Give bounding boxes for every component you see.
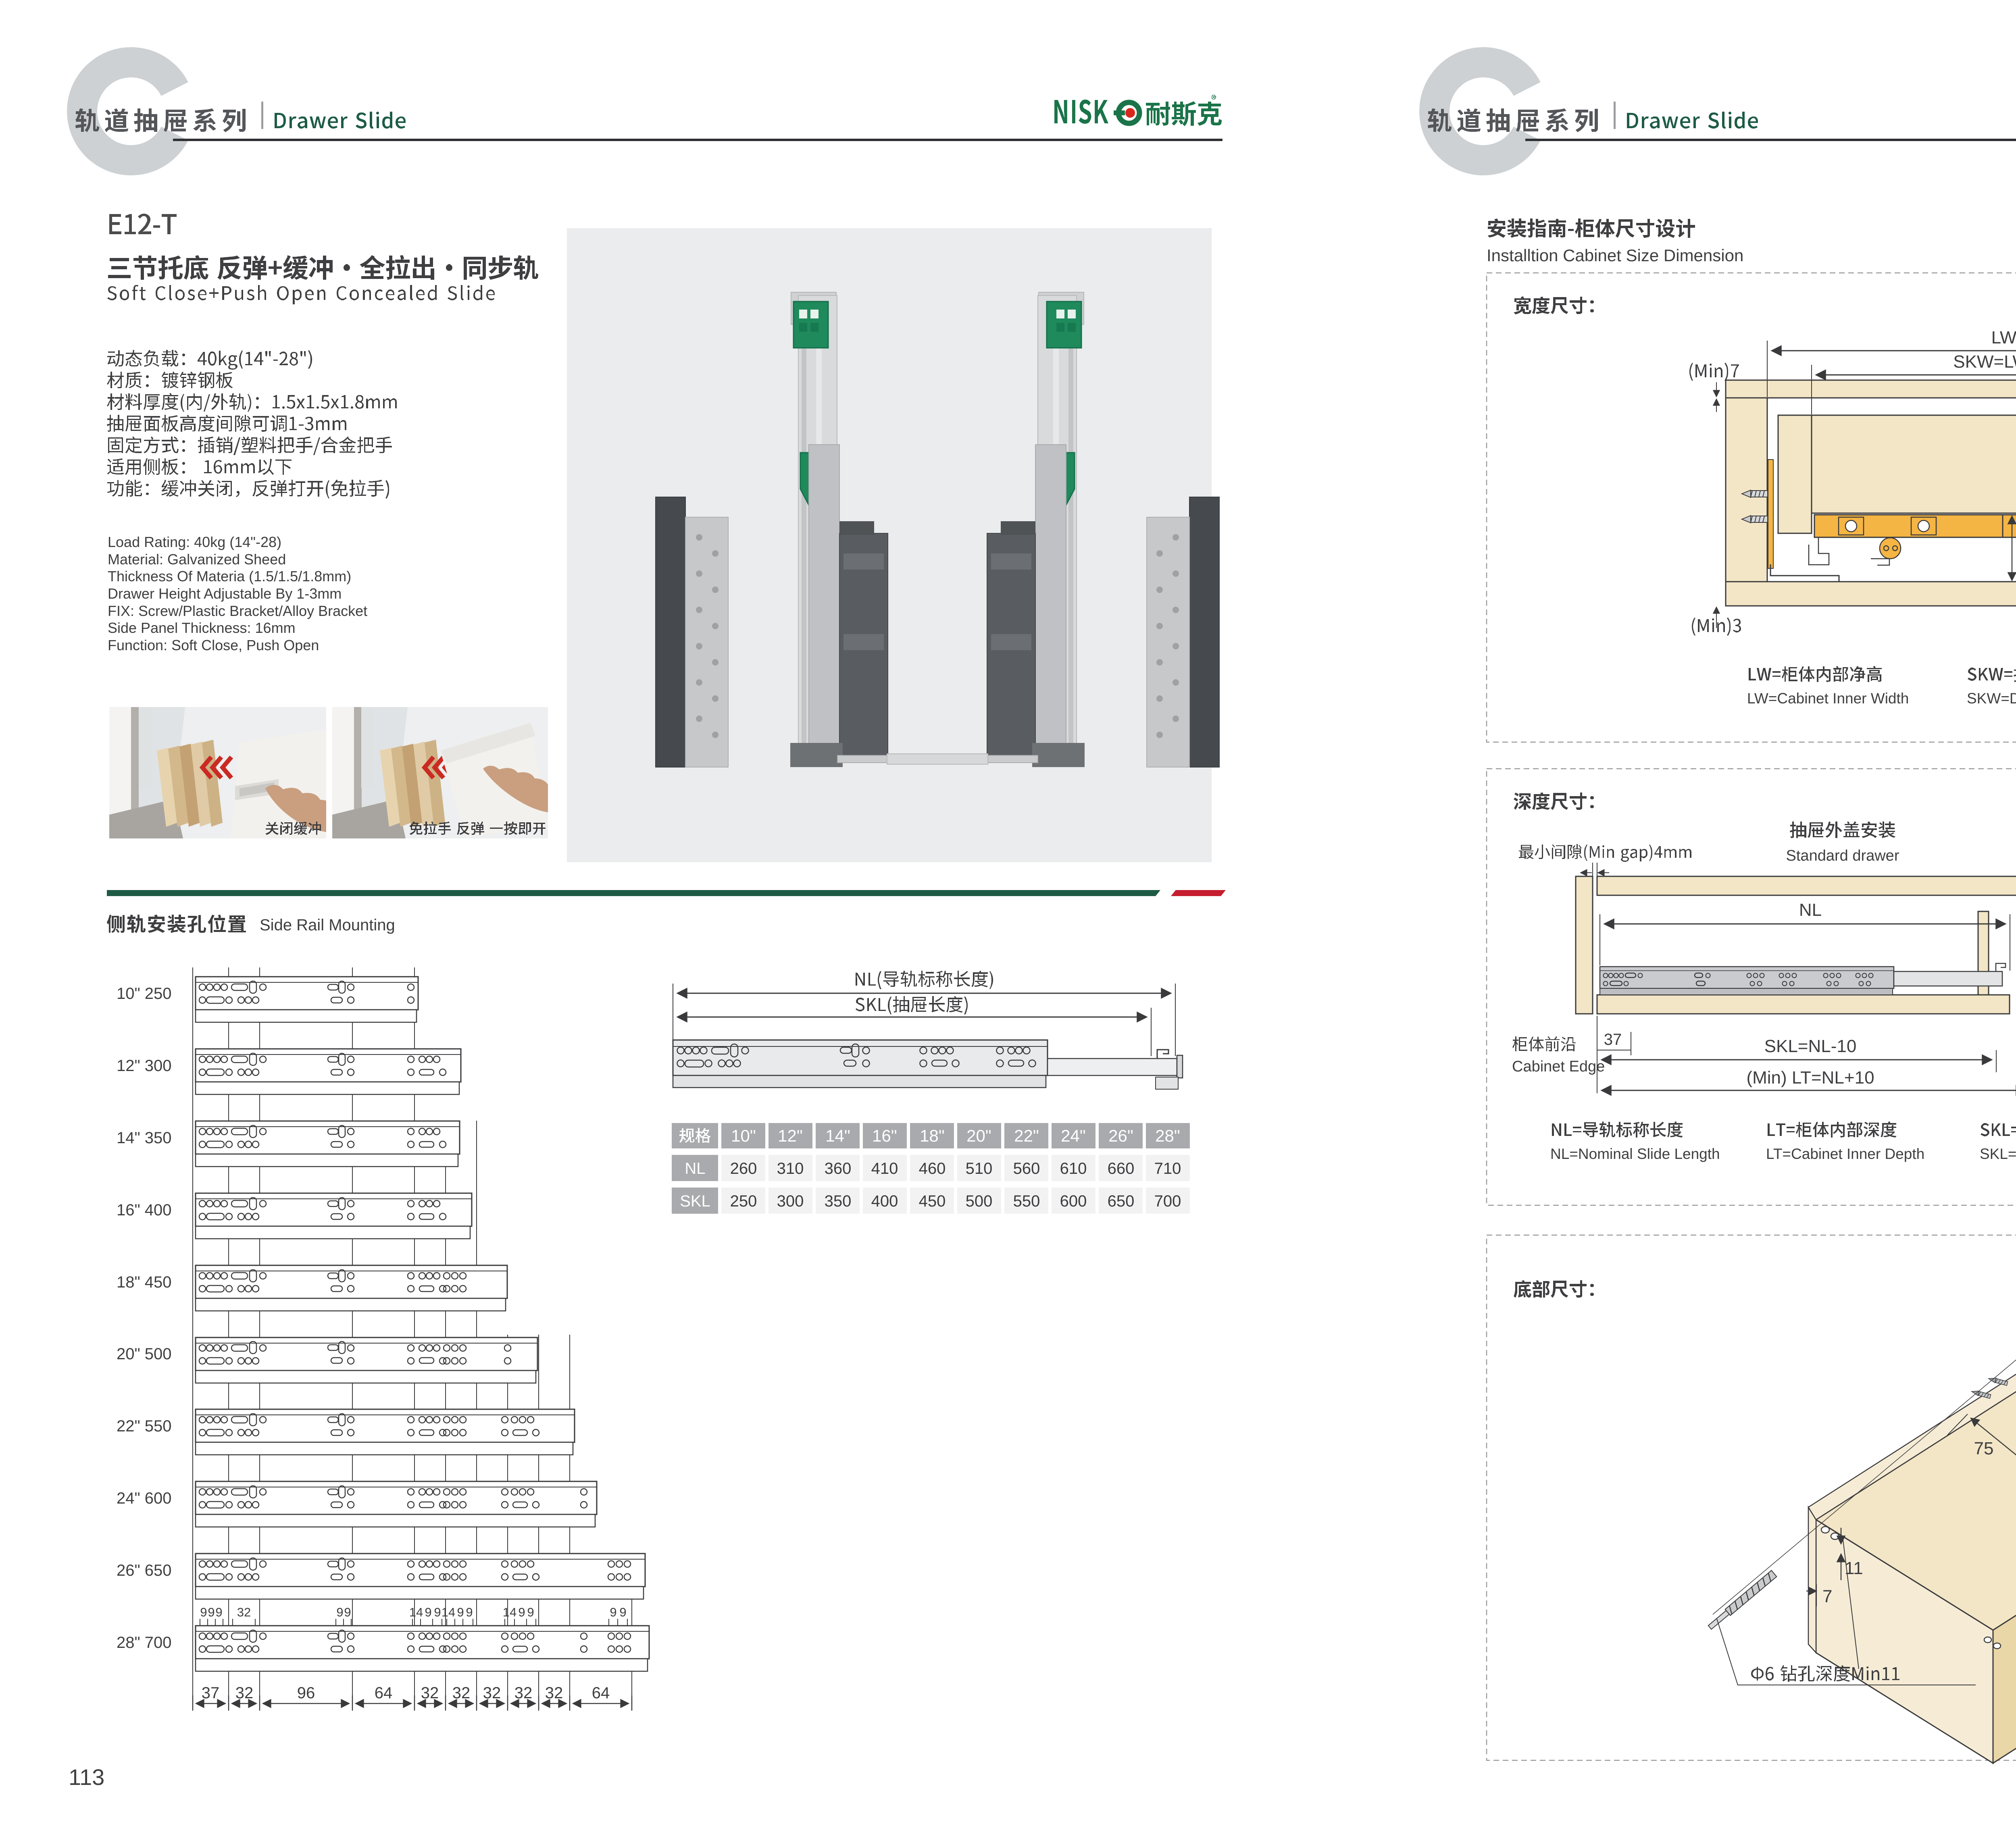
svg-text:SKW=Drawer Width: SKW=Drawer Width (1967, 690, 2016, 707)
svg-text:12" 300: 12" 300 (117, 1057, 172, 1075)
svg-text:Thickness Of Materia (1.5/1.5/: Thickness Of Materia (1.5/1.5/1.8mm) (108, 568, 351, 584)
svg-text:9: 9 (200, 1605, 207, 1619)
svg-text:300: 300 (777, 1192, 804, 1210)
svg-text:10": 10" (731, 1126, 756, 1145)
svg-text:560: 560 (1013, 1160, 1040, 1177)
svg-text:Cabinet Edge: Cabinet Edge (1512, 1058, 1605, 1075)
svg-text:9: 9 (336, 1605, 343, 1619)
svg-text:37: 37 (1604, 1031, 1622, 1048)
svg-text:20": 20" (966, 1126, 991, 1145)
svg-text:12": 12" (778, 1126, 803, 1145)
svg-text:(Min) LT=NL+10: (Min) LT=NL+10 (1746, 1068, 1874, 1088)
svg-text:28": 28" (1155, 1126, 1180, 1145)
svg-text:400: 400 (871, 1192, 898, 1210)
svg-text:11: 11 (1845, 1558, 1863, 1578)
svg-text:10" 250: 10" 250 (117, 985, 172, 1003)
svg-text:7: 7 (1822, 1587, 1832, 1606)
svg-text:9: 9 (610, 1605, 616, 1619)
svg-text:64: 64 (375, 1684, 393, 1702)
svg-text:37: 37 (202, 1684, 220, 1702)
svg-text:410: 410 (871, 1160, 898, 1177)
svg-text:LW=Cabinet Inner Width: LW=Cabinet Inner Width (1747, 690, 1909, 707)
svg-text:250: 250 (730, 1192, 757, 1210)
svg-text:Installtion Cabinet Size Dimen: Installtion Cabinet Size Dimension (1487, 246, 1743, 265)
svg-text:600: 600 (1060, 1192, 1087, 1210)
svg-text:9: 9 (208, 1605, 215, 1619)
svg-text:Load Rating: 40kg (14"-28): Load Rating: 40kg (14"-28) (108, 534, 281, 550)
svg-text:14: 14 (442, 1605, 455, 1619)
svg-text:Side Panel Thickness: 16mm: Side Panel Thickness: 16mm (108, 620, 296, 636)
svg-text:26": 26" (1108, 1126, 1133, 1145)
svg-text:14: 14 (409, 1605, 423, 1619)
svg-text:LW: LW (1991, 328, 2016, 347)
svg-text:9: 9 (434, 1605, 441, 1619)
svg-text:96: 96 (297, 1684, 315, 1702)
svg-text:64: 64 (592, 1684, 610, 1702)
svg-text:310: 310 (777, 1160, 804, 1177)
svg-text:660: 660 (1108, 1160, 1135, 1177)
svg-text:32: 32 (452, 1684, 471, 1702)
svg-text:16" 400: 16" 400 (117, 1201, 172, 1219)
svg-text:9: 9 (215, 1605, 222, 1619)
svg-text:SKL=NL-10: SKL=NL-10 (1764, 1036, 1857, 1056)
svg-text:20" 500: 20" 500 (117, 1345, 172, 1363)
svg-text:710: 710 (1154, 1160, 1181, 1177)
svg-text:9: 9 (466, 1605, 473, 1619)
svg-text:32: 32 (421, 1684, 439, 1702)
svg-text:32: 32 (514, 1684, 533, 1702)
svg-text:28" 700: 28" 700 (117, 1634, 172, 1651)
svg-text:650: 650 (1108, 1192, 1135, 1210)
svg-text:75: 75 (1974, 1439, 1994, 1458)
svg-text:14: 14 (503, 1605, 516, 1619)
svg-text:32: 32 (483, 1684, 501, 1702)
svg-text:24": 24" (1061, 1126, 1086, 1145)
svg-text:32: 32 (235, 1684, 254, 1702)
svg-text:FIX: Screw/Plastic Bracket/All: FIX: Screw/Plastic Bracket/Alloy Bracket (108, 603, 367, 619)
svg-text:9: 9 (518, 1605, 525, 1619)
svg-text:9: 9 (457, 1605, 464, 1619)
svg-text:510: 510 (966, 1160, 993, 1177)
svg-text:9: 9 (344, 1605, 351, 1619)
svg-text:NL=Nominal Slide Length: NL=Nominal Slide Length (1550, 1146, 1720, 1162)
svg-text:22" 550: 22" 550 (117, 1417, 172, 1435)
svg-text:9: 9 (619, 1605, 626, 1619)
svg-text:NL: NL (685, 1160, 705, 1177)
svg-text:9: 9 (425, 1605, 431, 1619)
svg-text:LT=Cabinet Inner Depth: LT=Cabinet Inner Depth (1766, 1146, 1924, 1162)
svg-text:NL: NL (1799, 900, 1822, 920)
svg-text:Material: Galvanized Sheed: Material: Galvanized Sheed (108, 551, 286, 568)
svg-text:14" 350: 14" 350 (117, 1129, 172, 1147)
svg-text:24" 600: 24" 600 (117, 1489, 172, 1507)
svg-text:26" 650: 26" 650 (117, 1562, 172, 1579)
svg-text:SKL=Drawer Length: SKL=Drawer Length (1980, 1146, 2016, 1162)
svg-text:32: 32 (237, 1605, 251, 1619)
svg-text:550: 550 (1013, 1192, 1040, 1210)
svg-text:Drawer Height Adjustable By 1-: Drawer Height Adjustable By 1-3mm (108, 585, 342, 602)
svg-text:16": 16" (872, 1126, 897, 1145)
svg-text:SKL: SKL (680, 1192, 710, 1210)
svg-text:18" 450: 18" 450 (117, 1273, 172, 1291)
svg-text:14": 14" (825, 1126, 850, 1145)
svg-text:113: 113 (69, 1764, 104, 1790)
svg-text:9: 9 (527, 1605, 534, 1619)
svg-text:460: 460 (919, 1160, 946, 1177)
svg-text:Function: Soft Close, Push Ope: Function: Soft Close, Push Open (108, 637, 319, 653)
svg-text:22": 22" (1014, 1126, 1039, 1145)
svg-text:610: 610 (1060, 1160, 1087, 1177)
svg-text:700: 700 (1154, 1192, 1181, 1210)
svg-text:Side Rail Mounting: Side Rail Mounting (260, 916, 395, 934)
svg-text:450: 450 (919, 1192, 946, 1210)
svg-text:260: 260 (730, 1160, 757, 1177)
svg-text:350: 350 (825, 1192, 852, 1210)
svg-text:SKW=LW-42: SKW=LW-42 (1953, 352, 2016, 372)
svg-text:Standard drawer: Standard drawer (1786, 847, 1899, 864)
svg-text:360: 360 (825, 1160, 852, 1177)
svg-text:500: 500 (966, 1192, 993, 1210)
svg-text:32: 32 (545, 1684, 563, 1702)
svg-text:18": 18" (920, 1126, 945, 1145)
